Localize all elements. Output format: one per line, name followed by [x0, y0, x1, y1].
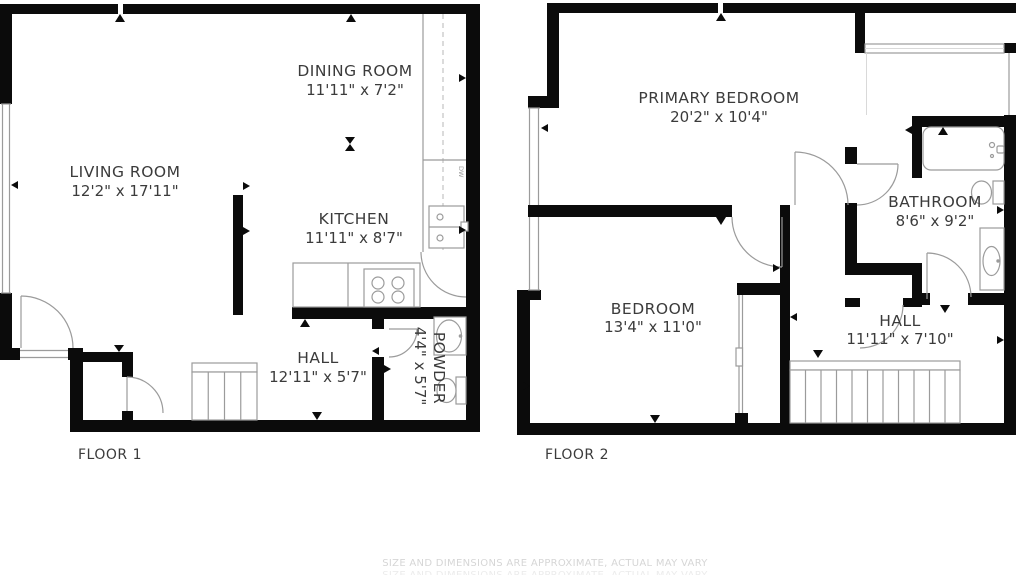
closet-door-swing: [127, 377, 163, 413]
disclaimer-text: SIZE AND DIMENSIONS ARE APPROXIMATE, ACT…: [382, 558, 708, 569]
room-dims: 11'11" x 7'2": [306, 81, 404, 99]
hall-floor1-label: HALL 12'11" x 5'7": [269, 349, 367, 386]
bathroom-door-swing-hall: [927, 253, 971, 299]
room-name: KITCHEN: [319, 210, 390, 228]
floor-1-plan: DW: [0, 4, 480, 463]
kitchen-label: KITCHEN 11'11" x 8'7": [305, 210, 403, 247]
front-door-swing: [21, 296, 73, 348]
kitchen-counter-right: [421, 14, 466, 297]
room-name: DINING ROOM: [297, 62, 412, 80]
room-name: HALL: [879, 312, 921, 330]
dining-room-label: DINING ROOM 11'11" x 7'2": [297, 62, 412, 99]
room-name: POWDER: [430, 332, 448, 404]
bedroom-closet-doors: [736, 295, 743, 413]
floor-plan-page: DW: [0, 0, 1024, 575]
room-name: HALL: [297, 349, 339, 367]
primary-bedroom-door-swing: [795, 152, 848, 205]
room-dims: 8'6" x 9'2": [896, 212, 975, 230]
bathroom-sink: [980, 228, 1004, 290]
room-dims: 12'2" x 17'11": [71, 182, 178, 200]
room-name: LIVING ROOM: [70, 163, 181, 181]
dishwasher-label: DW: [457, 166, 465, 178]
primary-bedroom-window-left: [528, 108, 540, 290]
room-dims: 13'4" x 11'0": [604, 318, 702, 336]
stove: [364, 269, 414, 307]
stairs-floor-1: [192, 363, 257, 420]
room-name: BATHROOM: [888, 193, 982, 211]
powder-label: POWDER 4'4" x 5'7": [411, 327, 448, 406]
room-dims: 11'11" x 7'10": [846, 330, 953, 348]
room-dims: 4'4" x 5'7": [411, 327, 429, 406]
floor-1-title: FLOOR 1: [78, 447, 142, 463]
kitchen-sink: [429, 206, 468, 248]
bedroom-door-swing: [732, 217, 782, 267]
bathroom-label: BATHROOM 8'6" x 9'2": [888, 193, 982, 230]
bedroom-label: BEDROOM 13'4" x 11'0": [604, 300, 702, 336]
floor-plan-drawing: DW: [0, 0, 1024, 575]
bathtub: [923, 127, 1004, 170]
primary-bedroom-label: PRIMARY BEDROOM 20'2" x 10'4": [638, 89, 799, 126]
room-name: BEDROOM: [611, 300, 695, 318]
room-dims: 11'11" x 8'7": [305, 229, 403, 247]
hall-floor2-label: HALL 11'11" x 7'10": [846, 312, 953, 348]
floor-2-plan: PRIMARY BEDROOM 20'2" x 10'4" BEDROOM 13…: [517, 3, 1016, 463]
room-name: PRIMARY BEDROOM: [638, 89, 799, 107]
living-room-window: [1, 104, 11, 293]
stairs-floor-2: [790, 361, 960, 423]
floor-2-title: FLOOR 2: [545, 447, 609, 463]
disclaimer-text-cutoff: SIZE AND DIMENSIONS ARE APPROXIMATE, ACT…: [382, 570, 708, 575]
room-dims: 12'11" x 5'7": [269, 368, 367, 386]
primary-bedroom-window-band: [865, 44, 1009, 115]
room-dims: 20'2" x 10'4": [670, 108, 768, 126]
living-room-label: LIVING ROOM 12'2" x 17'11": [70, 163, 181, 200]
